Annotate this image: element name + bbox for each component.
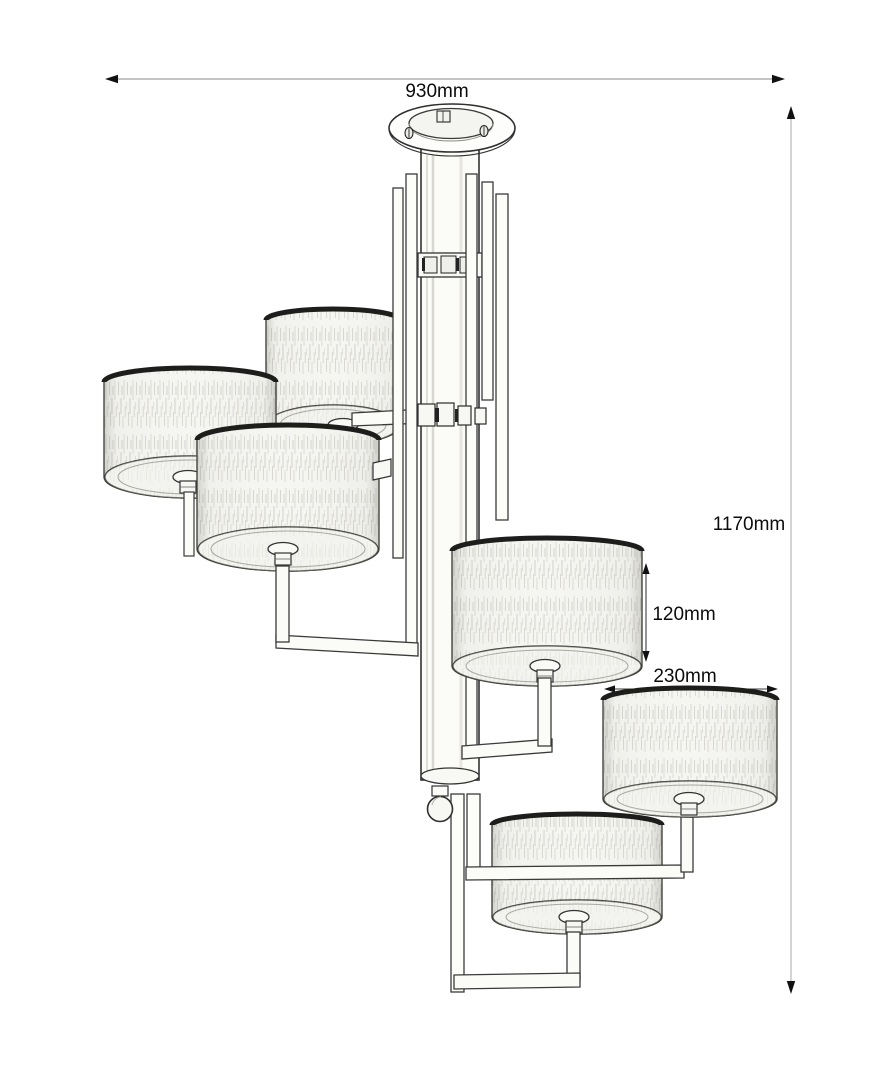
column-bottom-cap — [421, 768, 479, 784]
arm-connector — [437, 403, 454, 426]
arrow-right-icon — [772, 75, 785, 83]
arm-rod — [538, 678, 551, 746]
arm-connector — [435, 408, 439, 422]
arm-6 — [454, 932, 580, 989]
arm-rod — [276, 566, 289, 642]
joint-detail — [441, 256, 456, 273]
arrow-down-icon — [787, 981, 795, 994]
support-rod — [482, 182, 493, 400]
arm-connector — [455, 409, 458, 422]
arm-rod — [681, 814, 693, 872]
dimension-overall-height: 1170mm — [713, 106, 795, 994]
arrow-down-icon — [642, 651, 649, 662]
support-rod — [393, 188, 403, 558]
joint-detail — [422, 258, 425, 271]
arrow-up-icon — [787, 106, 795, 119]
arm-rod — [466, 865, 684, 880]
joint-detail — [456, 258, 459, 271]
arm-rod — [184, 492, 194, 556]
shade-height-label: 120mm — [652, 604, 715, 625]
arrow-up-icon — [642, 563, 649, 574]
joint-detail — [424, 257, 437, 273]
arm-connector — [475, 408, 486, 424]
arrow-right-icon — [767, 685, 778, 692]
arrow-left-icon — [105, 75, 118, 83]
arm-connector — [418, 404, 435, 426]
arm-bracket — [373, 459, 391, 480]
dimension-diagram: 930mm 1170mm 120mm 230mm — [0, 0, 895, 1075]
drum-shade-4 — [452, 538, 642, 686]
support-rod — [467, 794, 480, 874]
arm-rod — [276, 635, 418, 656]
drum-shade-5 — [603, 688, 777, 817]
support-rod — [451, 794, 464, 992]
canopy-clip — [437, 111, 450, 122]
shade-diameter-label: 230mm — [653, 666, 716, 687]
support-rod — [496, 194, 508, 520]
arm-connector — [458, 406, 471, 425]
drum-shade-3 — [197, 425, 379, 571]
overall-width-label: 930mm — [405, 81, 468, 102]
arm-2 — [184, 492, 194, 556]
dimension-overall-width: 930mm — [105, 75, 785, 102]
ball-finial — [428, 797, 453, 822]
arm-rod — [454, 973, 580, 989]
dimension-shade-height: 120mm — [642, 563, 715, 662]
overall-height-label: 1170mm — [713, 514, 786, 535]
arrow-left-icon — [604, 685, 615, 692]
support-rod — [406, 174, 417, 646]
finial-collar — [432, 786, 448, 796]
